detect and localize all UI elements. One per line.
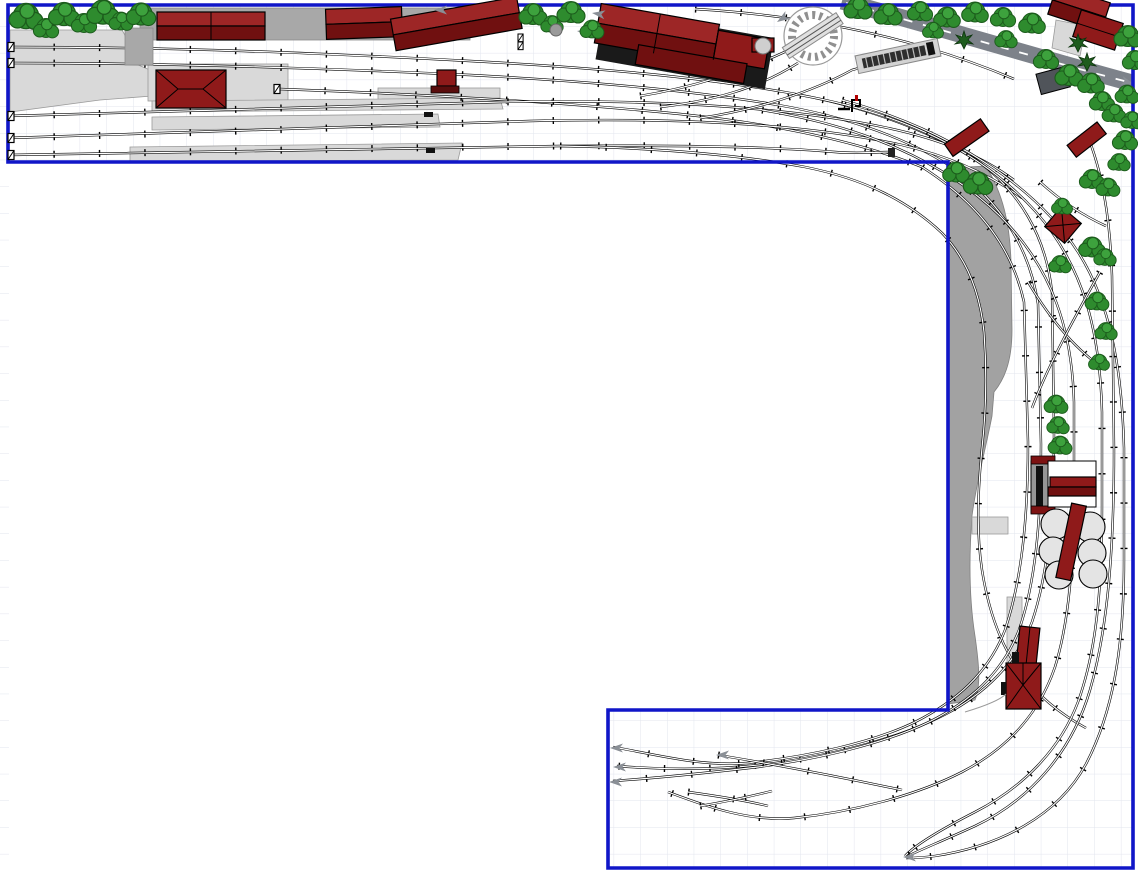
track-plan-canvas[interactable]: [0, 0, 1138, 876]
factory-complex[interactable]: [1031, 456, 1096, 514]
dead-tree-icon: [550, 24, 562, 36]
street-band-stub: [125, 28, 153, 65]
platform-wagon: [426, 148, 435, 153]
water-tower[interactable]: [755, 38, 771, 54]
platform-wagon: [424, 112, 433, 117]
storage-tanks[interactable]: [1039, 503, 1107, 589]
goods-shed[interactable]: [156, 70, 226, 108]
